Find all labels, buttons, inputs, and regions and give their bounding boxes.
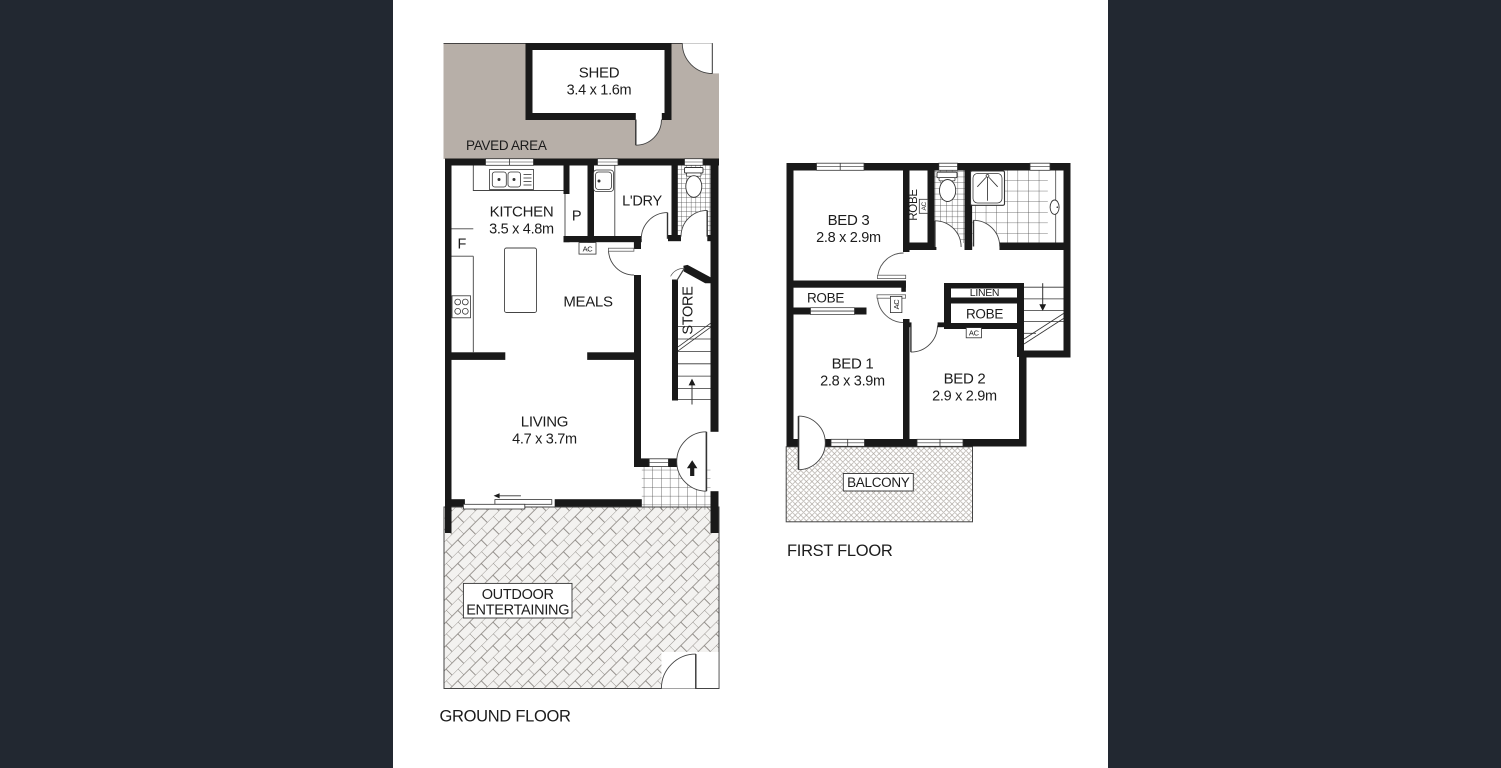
svg-text:PAVED AREA: PAVED AREA	[466, 138, 547, 153]
svg-text:FIRST FLOOR: FIRST FLOOR	[787, 542, 893, 560]
svg-text:GROUND FLOOR: GROUND FLOOR	[440, 708, 572, 726]
svg-text:BED 2: BED 2	[944, 371, 986, 388]
svg-text:BED 1: BED 1	[832, 356, 874, 373]
svg-text:L'DRY: L'DRY	[622, 194, 662, 210]
svg-text:AC: AC	[969, 329, 980, 338]
svg-text:ROBE: ROBE	[908, 189, 920, 221]
svg-text:LIVING: LIVING	[521, 414, 568, 431]
svg-text:3.5 x 4.8m: 3.5 x 4.8m	[489, 222, 554, 238]
svg-text:OUTDOOR: OUTDOOR	[482, 587, 554, 603]
svg-text:AC: AC	[892, 299, 901, 310]
svg-text:SHED: SHED	[579, 65, 620, 82]
svg-text:4.7 x 3.7m: 4.7 x 3.7m	[512, 432, 577, 448]
svg-text:F: F	[458, 237, 467, 253]
svg-text:KITCHEN: KITCHEN	[490, 204, 554, 221]
svg-text:LINEN: LINEN	[970, 287, 999, 299]
svg-text:ENTERTAINING: ENTERTAINING	[466, 602, 569, 618]
svg-text:AC: AC	[583, 244, 594, 253]
svg-text:BED 3: BED 3	[828, 212, 870, 229]
svg-text:STORE: STORE	[681, 286, 697, 335]
svg-text:2.9 x 2.9m: 2.9 x 2.9m	[932, 389, 997, 405]
svg-text:P: P	[572, 209, 581, 225]
svg-text:ROBE: ROBE	[807, 291, 844, 306]
svg-text:BALCONY: BALCONY	[847, 475, 910, 490]
svg-text:MEALS: MEALS	[563, 294, 613, 311]
svg-text:ROBE: ROBE	[966, 306, 1003, 321]
svg-text:3.4 x 1.6m: 3.4 x 1.6m	[567, 83, 632, 99]
svg-text:AC: AC	[921, 201, 928, 210]
svg-text:2.8 x 3.9m: 2.8 x 3.9m	[820, 374, 885, 390]
svg-text:2.8 x 2.9m: 2.8 x 2.9m	[816, 230, 881, 246]
